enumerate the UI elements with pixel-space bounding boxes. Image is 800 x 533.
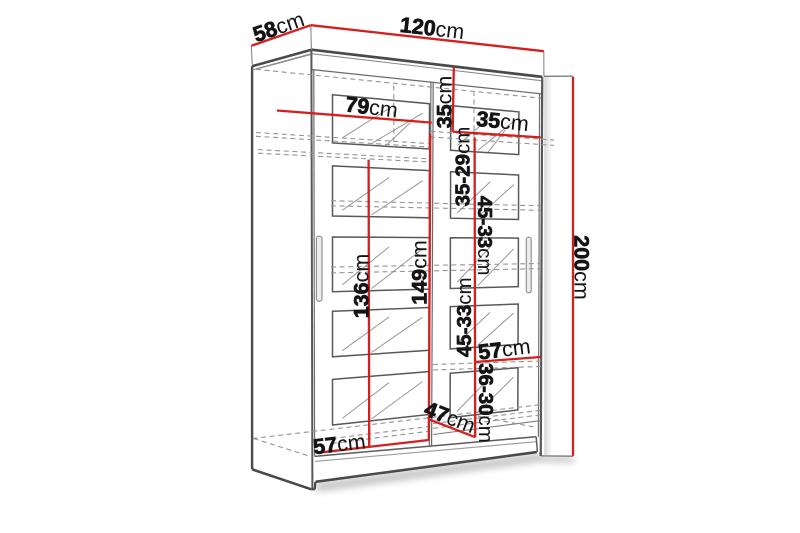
svg-text:35-29cm: 35-29cm <box>452 127 475 207</box>
svg-text:136cm: 136cm <box>349 254 373 319</box>
svg-text:149cm: 149cm <box>407 240 431 305</box>
svg-text:35cm: 35cm <box>432 76 456 129</box>
svg-text:36-30cm: 36-30cm <box>474 363 497 443</box>
svg-text:45-33cm: 45-33cm <box>453 277 476 357</box>
svg-text:45-33cm: 45-33cm <box>473 196 496 276</box>
svg-text:200cm: 200cm <box>570 235 594 300</box>
